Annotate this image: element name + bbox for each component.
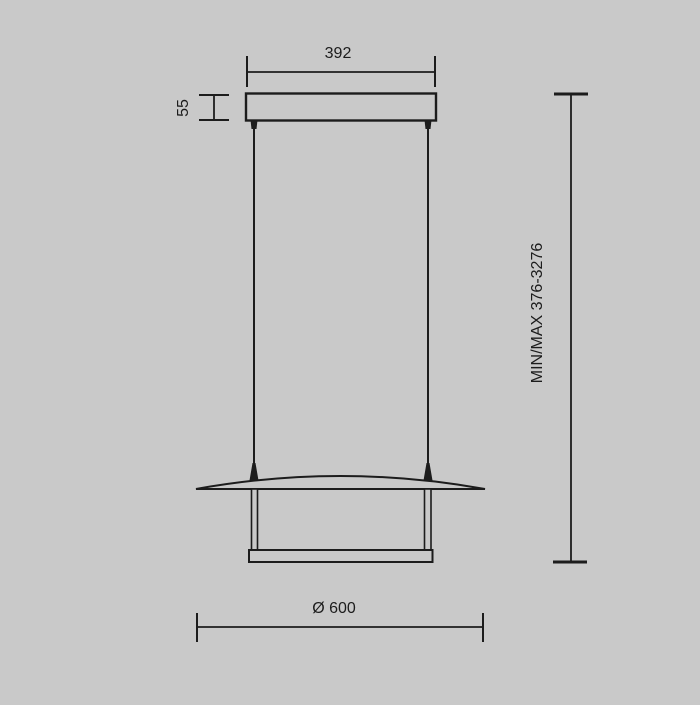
dimension-label-suspension-range: MIN/MAX 376-3276 [529,243,546,384]
frame-side-right [425,489,432,551]
pendant-lamp-dimension-drawing: 392 55 [0,0,700,700]
ceiling-canopy [246,94,436,121]
dimension-canopy-width: 392 [247,45,435,87]
dimension-label-diameter: Ø 600 [312,600,356,617]
suspension-wires [250,120,433,481]
wire-cone-left [250,463,259,481]
technical-drawing-canvas: 392 55 [0,0,700,700]
frame-bottom-bar [249,550,433,562]
lamp-frame [249,489,433,562]
dimension-diameter: Ø 600 [197,600,483,642]
dimension-label-canopy-width: 392 [325,45,352,62]
frame-side-left [252,489,258,551]
wire-cone-right [424,463,433,481]
dimension-label-canopy-height: 55 [175,99,192,117]
dimension-canopy-height: 55 [175,95,229,120]
dimension-suspension-height: MIN/MAX 376-3276 [529,94,588,562]
shade-disc [196,476,485,489]
